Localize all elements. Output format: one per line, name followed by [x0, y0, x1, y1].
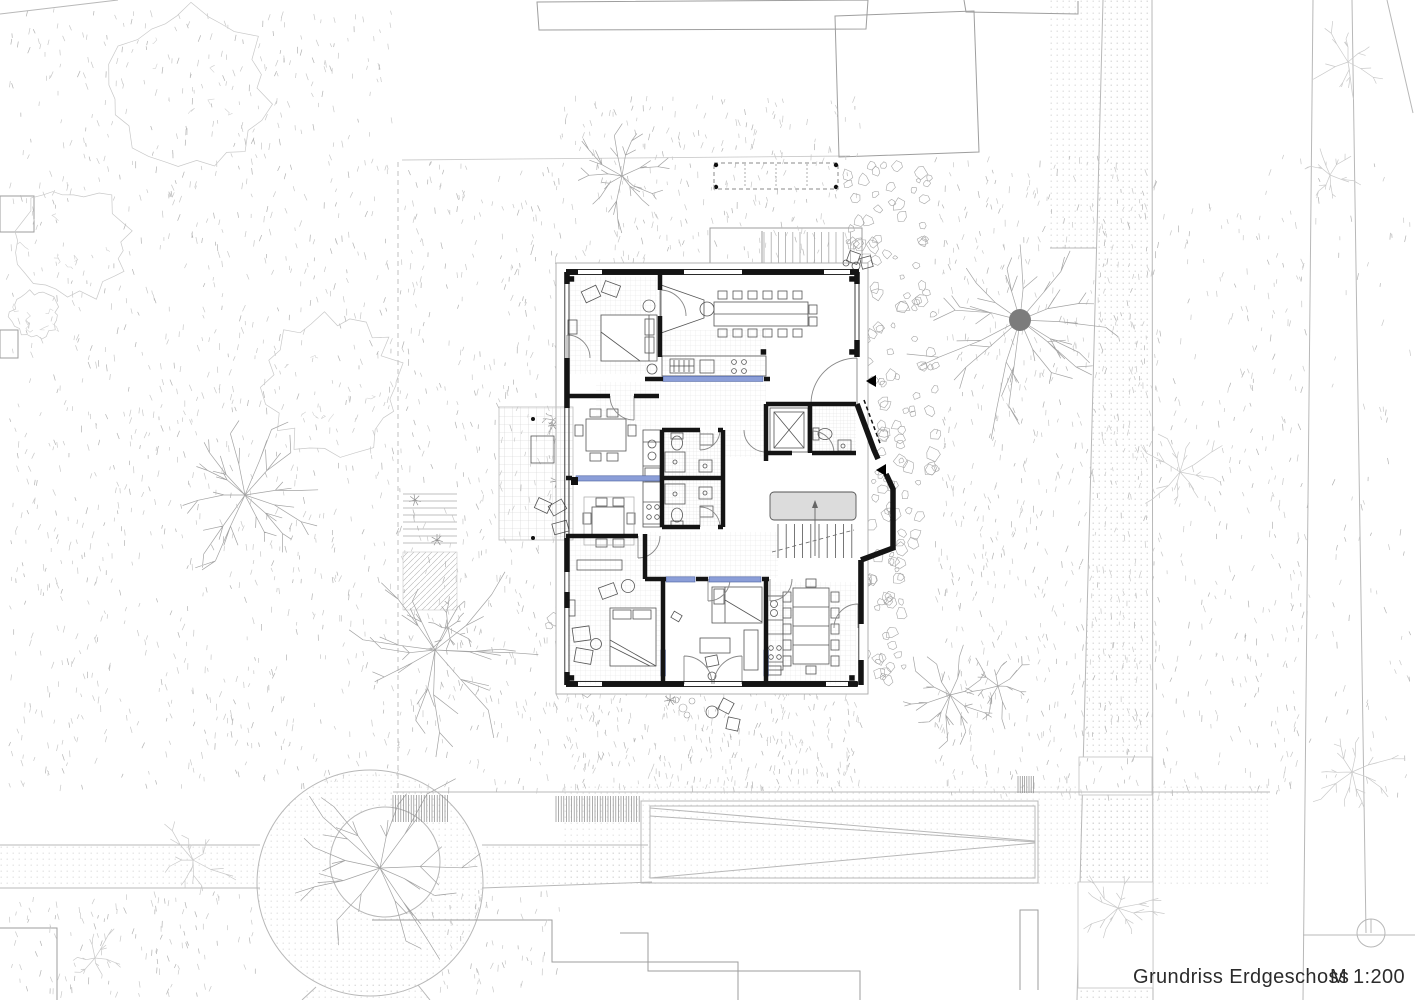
pergola-terrace [499, 407, 573, 540]
entrance-arrow-icon [866, 375, 886, 476]
floor-plan-drawing: Grundriss Erdgeschoss M 1:200 [0, 0, 1415, 1000]
building-floor-plan [499, 250, 893, 731]
canopy-dashed-outline [714, 163, 838, 189]
architectural-site-plan: Grundriss Erdgeschoss M 1:200 [0, 0, 1415, 1000]
plan-scale: M 1:200 [1330, 966, 1405, 988]
plan-caption: Grundriss Erdgeschoss M 1:200 [1133, 966, 1405, 988]
plan-title: Grundriss Erdgeschoss [1133, 966, 1349, 988]
